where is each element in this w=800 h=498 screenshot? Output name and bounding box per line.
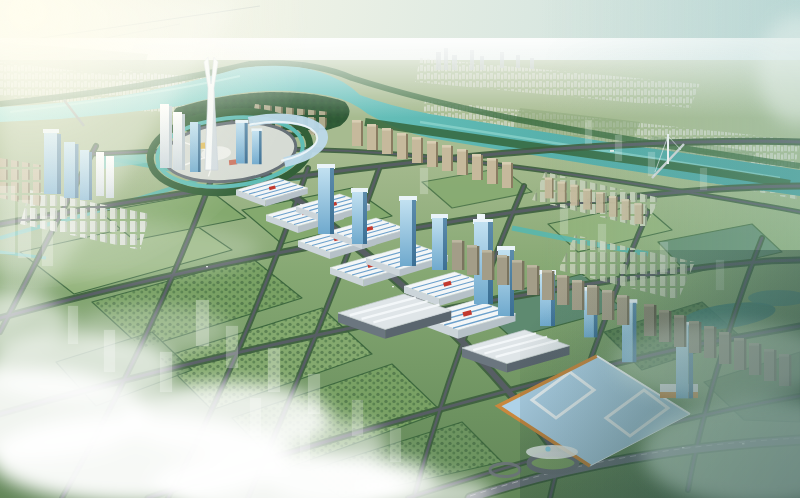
office-tower [351,188,368,244]
office-tower [399,196,417,266]
office-tower [317,164,335,234]
aerial-masterplan-rendering [0,0,800,498]
office-tower [431,214,448,270]
